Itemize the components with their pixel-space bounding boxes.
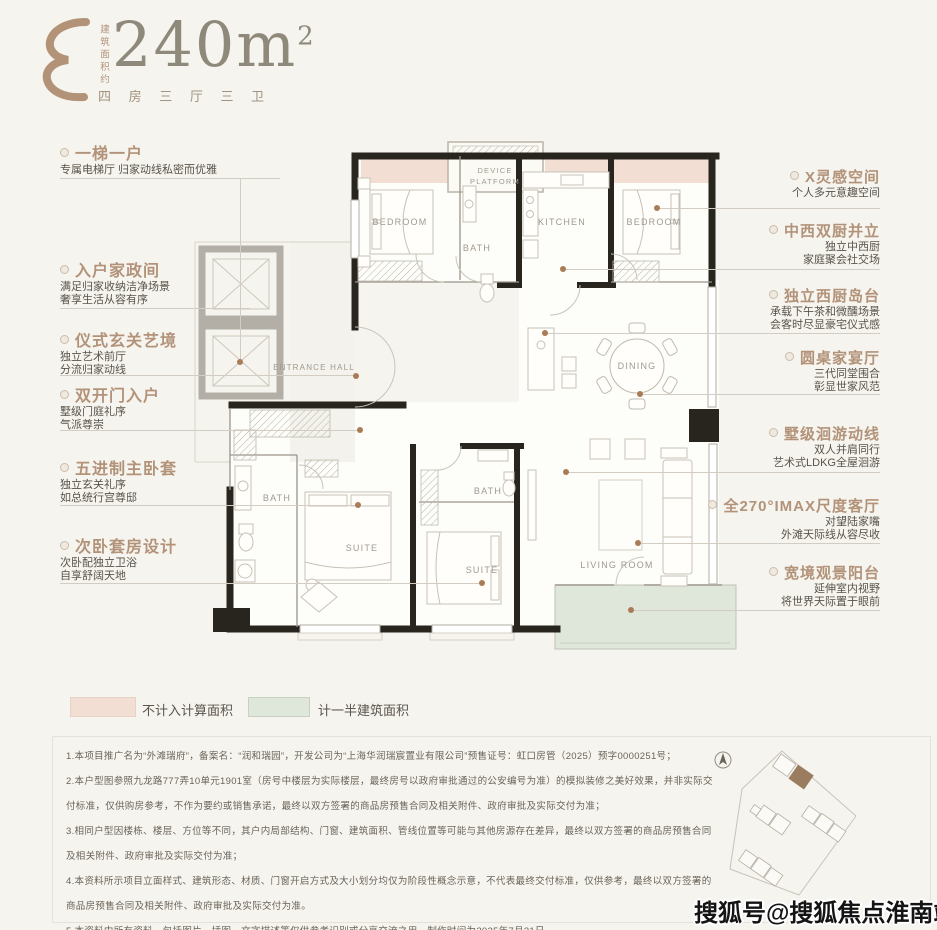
bullet-ring-icon [60, 463, 69, 472]
area-label-vertical: 建筑面积约 [96, 24, 110, 87]
feature-title: 独立西厨岛台 [680, 287, 880, 306]
area-value: 240m [112, 8, 297, 81]
feature-block: X灵感空间 个人多元意趣空间 [680, 168, 880, 200]
disclaimer-item: 4.本资料所示项目立面样式、建筑形态、材质、门窗开启方式及大小划分均仅为阶段性概… [66, 869, 714, 919]
bullet-ring-icon [60, 335, 69, 344]
feature-title: 中西双厨并立 [680, 222, 880, 241]
feature-line: 将世界天际置于眼前 [680, 596, 880, 609]
wall-pier [213, 608, 250, 632]
room-label-bedroom-left: BEDROOM [373, 217, 428, 227]
leader-dot [357, 427, 363, 433]
feature-title: 一梯一户 [60, 145, 290, 164]
room-label-dining: DINING [618, 361, 657, 371]
room-label-living-room: LIVING ROOM [580, 560, 653, 570]
leader-dot [628, 607, 634, 613]
legend-label-uncounted: 不计入计算面积 [142, 700, 233, 719]
page-title-area: 240m2 [112, 8, 316, 81]
leader-dot [479, 580, 485, 586]
disclaimer-item: 2.本户型图参照九龙路777弄10单元1901室（房号中楼层为实际楼层，最终房号… [66, 769, 714, 819]
feature-block: 双开门入户 墅级门庭礼序 气派尊崇 [60, 387, 290, 432]
bay-window [430, 633, 514, 640]
feature-block: 仪式玄关艺境 独立艺术前厅 分流归家动线 [60, 332, 290, 377]
feature-title: 五进制主卧套 [60, 460, 290, 479]
leader-dot [654, 205, 660, 211]
feature-block: 墅级洄游动线 双人并肩同行 艺术式LDKG全屋洄游 [680, 425, 880, 470]
feature-block: 五进制主卧套 独立玄关礼序 如总统行宫尊邸 [60, 460, 290, 505]
feature-line: 双人并肩同行 [680, 444, 880, 457]
bay-window [298, 633, 382, 640]
bullet-ring-icon [60, 265, 69, 274]
room-label-device-platform: PLATFORM [470, 177, 520, 186]
disclaimer: 1.本项目推广名为“外滩瑞府”，备案名：“润和瑞园”，开发公司为“上海华润瑞宸置… [66, 744, 714, 930]
room-label-suite-left: SUITE [346, 543, 379, 553]
uncounted-area-band [361, 159, 449, 183]
feature-line: 自享舒阔天地 [60, 570, 290, 583]
disclaimer-item: 1.本项目推广名为“外滩瑞府”，备案名：“润和瑞园”，开发公司为“上海华润瑞宸置… [66, 744, 714, 769]
site-key-plan [698, 740, 933, 912]
room-label-suite-right: SUITE [466, 565, 499, 575]
disclaimer-item: 3.相同户型因楼栋、楼层、方位等不同，其户内局部结构、门窗、建筑面积、管线位置等… [66, 819, 714, 869]
feature-line: 奢享生活从容有序 [60, 294, 290, 307]
room-label-kitchen: KITCHEN [538, 217, 586, 227]
leader-dot [635, 540, 641, 546]
feature-title: 圆桌家宴厅 [680, 349, 880, 368]
floorplan-page: 建筑面积约 240m2 四 房 三 厅 三 卫 一梯一户 专属电梯厅 归家动线私… [0, 0, 937, 930]
watermark: 搜狐号@搜狐焦点淮南站 [694, 893, 937, 928]
leader-line [60, 178, 280, 179]
north-arrow-icon [715, 752, 731, 768]
feature-line: 分流归家动线 [60, 364, 290, 377]
leader-line [640, 394, 880, 395]
feature-line: 三代同堂围合 [680, 368, 880, 381]
feature-line: 次卧配独立卫浴 [60, 557, 290, 570]
feature-line: 会客时尽显豪宅仪式感 [680, 319, 880, 332]
disclaimer-item: 5.本资料中所有资料，包括图片、插图、文字描述等仅供参考识别或分享交流之用，制作… [66, 919, 714, 930]
feature-line: 承载下午茶和微醺场景 [680, 306, 880, 319]
leader-line [638, 543, 880, 544]
feature-title: 双开门入户 [60, 387, 290, 406]
leader-line [60, 308, 250, 309]
feature-line: 外滩天际线从容尽收 [680, 529, 880, 542]
bullet-ring-icon [708, 500, 717, 509]
leader-line [563, 269, 880, 270]
feature-line: 对望陆家嘴 [680, 516, 880, 529]
brand-monogram-icon [24, 13, 96, 107]
leader-line [60, 583, 482, 584]
room-label-bath-inner: BATH [474, 486, 502, 496]
leader-dot [542, 330, 548, 336]
room-label-bath-top: BATH [463, 243, 491, 253]
layout-spec: 四 房 三 厅 三 卫 [98, 86, 271, 105]
feature-line: 独立艺术前厅 [60, 351, 290, 364]
leader-dot [353, 373, 359, 379]
feature-block: 全270°IMAX尺度客厅 对望陆家嘴 外滩天际线从容尽收 [680, 497, 880, 542]
feature-line: 气派尊崇 [60, 419, 290, 432]
feature-block: 一梯一户 专属电梯厅 归家动线私密而优雅 [60, 145, 290, 177]
feature-title: 全270°IMAX尺度客厅 [680, 497, 880, 516]
feature-block: 入户家政间 满足归家收纳洁净场景 奢享生活从容有序 [60, 262, 290, 307]
bullet-ring-icon [769, 290, 778, 299]
feature-line: 如总统行宫尊邸 [60, 492, 290, 505]
site-buildings [739, 753, 847, 886]
bullet-ring-icon [785, 352, 794, 361]
feature-line: 满足归家收纳洁净场景 [60, 281, 290, 294]
feature-block: 圆桌家宴厅 三代同堂围合 彰显世家风范 [680, 349, 880, 394]
feature-title: 宽境观景阳台 [680, 564, 880, 583]
feature-line: 独立玄关礼序 [60, 479, 290, 492]
leader-line [60, 505, 358, 506]
room-label-bedroom-right: BEDROOM [627, 217, 682, 227]
bullet-ring-icon [60, 541, 69, 550]
feature-title: X灵感空间 [680, 168, 880, 187]
feature-line: 艺术式LDKG全屋洄游 [680, 457, 880, 470]
area-sup: 2 [297, 21, 316, 51]
bullet-ring-icon [769, 225, 778, 234]
feature-block: 独立西厨岛台 承载下午茶和微醺场景 会客时尽显豪宅仪式感 [680, 287, 880, 332]
feature-line: 墅级门庭礼序 [60, 406, 290, 419]
feature-line: 个人多元意趣空间 [680, 187, 880, 200]
leader-dot [637, 391, 643, 397]
feature-block: 中西双厨并立 独立中西厨 家庭聚会社交场 [680, 222, 880, 267]
leader-line [566, 472, 880, 473]
feature-block: 宽境观景阳台 延伸室内视野 将世界天际置于眼前 [680, 564, 880, 609]
feature-line: 专属电梯厅 归家动线私密而优雅 [60, 164, 290, 177]
feature-line: 独立中西厨 [680, 241, 880, 254]
feature-line: 彰显世家风范 [680, 381, 880, 394]
leader-line [657, 208, 880, 209]
bullet-ring-icon [60, 148, 69, 157]
legend-swatch-uncounted [70, 697, 136, 717]
feature-title: 入户家政间 [60, 262, 290, 281]
leader-line [631, 610, 880, 611]
bullet-ring-icon [769, 428, 778, 437]
legend-label-half-area: 计一半建筑面积 [318, 700, 409, 719]
leader-line [545, 333, 880, 334]
feature-title: 次卧套房设计 [60, 538, 290, 557]
feature-title: 墅级洄游动线 [680, 425, 880, 444]
leader-dot [563, 469, 569, 475]
bullet-ring-icon [60, 390, 69, 399]
feature-title: 仪式玄关艺境 [60, 332, 290, 351]
feature-block: 次卧套房设计 次卧配独立卫浴 自享舒阔天地 [60, 538, 290, 583]
leader-dot [560, 266, 566, 272]
leader-dot [355, 502, 361, 508]
feature-line: 家庭聚会社交场 [680, 254, 880, 267]
bullet-ring-icon [790, 171, 799, 180]
legend-swatch-half-area [248, 697, 310, 717]
bullet-ring-icon [769, 567, 778, 576]
feature-line: 延伸室内视野 [680, 583, 880, 596]
room-label-device-platform: DEVICE [477, 166, 512, 175]
